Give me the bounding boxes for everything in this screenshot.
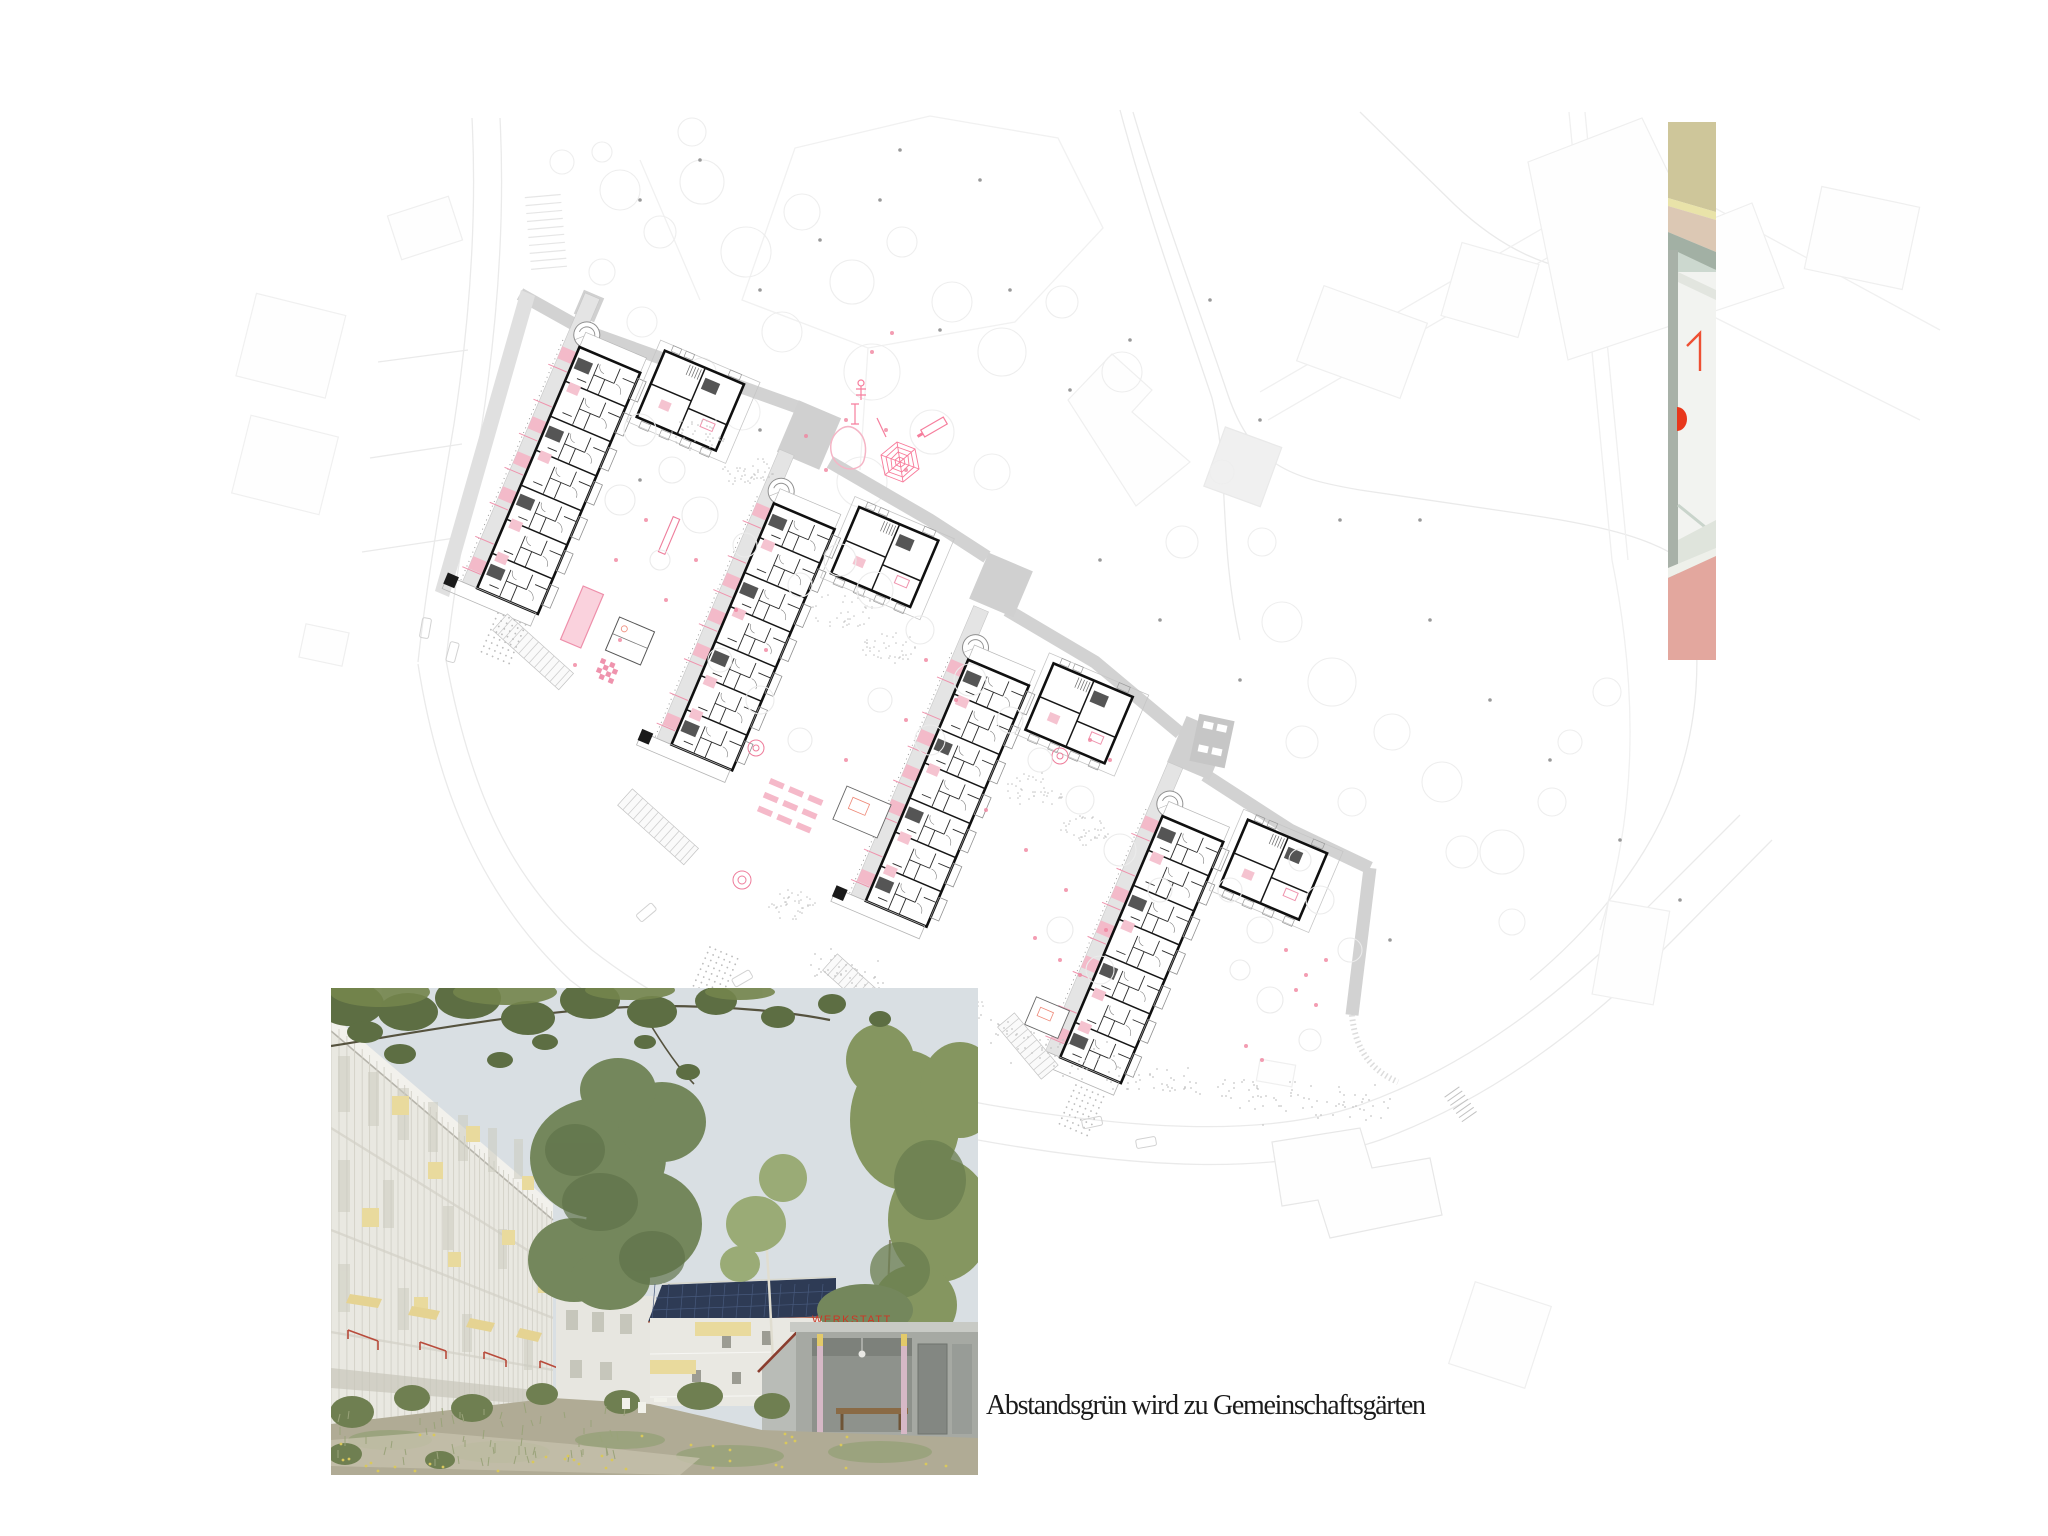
svg-text:Abstandsgrün wird zu Gemeinsch: Abstandsgrün wird zu Gemeinschaftsgärten <box>986 1390 1426 1421</box>
